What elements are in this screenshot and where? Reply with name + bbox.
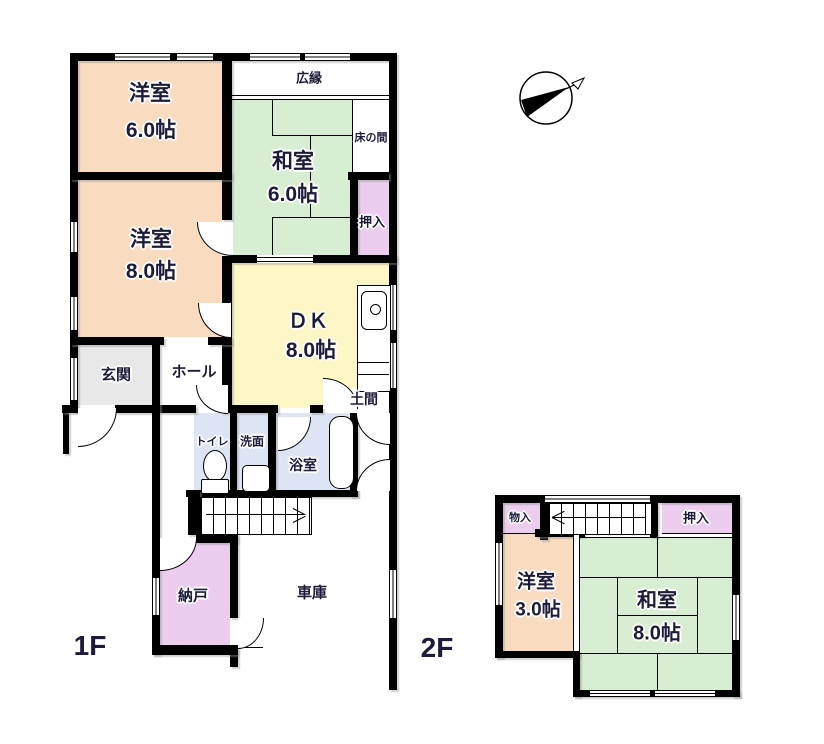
wall (70, 337, 164, 345)
room-name-label: 広縁 (296, 68, 322, 87)
wall (208, 337, 232, 345)
room-name-label: 押入 (359, 212, 385, 231)
room-name-label: 浴室 (289, 455, 317, 475)
floor-label-1f: 1F (74, 630, 107, 662)
toilet-icon (203, 450, 227, 482)
sliding-door-line (257, 257, 313, 258)
partition-line (662, 533, 732, 534)
window-marker (115, 53, 170, 61)
window-marker (152, 578, 160, 615)
room-name-label: 洋室 (517, 567, 555, 594)
room-size-label: 6.0帖 (268, 178, 318, 208)
bathtub-icon (329, 416, 354, 489)
stairs-arrow-line (552, 517, 646, 518)
room-name-label: 物入 (509, 509, 531, 525)
wall (62, 405, 78, 413)
tatami-line (272, 217, 273, 255)
room-name-label: 洗面 (240, 433, 264, 450)
sink-icon (242, 465, 270, 492)
sliding-door-line (257, 261, 313, 262)
room-size-label: 3.0帖 (515, 595, 560, 622)
wall (188, 490, 200, 535)
partition-line (503, 533, 540, 534)
wall (230, 413, 237, 490)
wall (222, 61, 232, 220)
door-arc (356, 459, 390, 491)
window-marker (590, 690, 650, 697)
room-name-label: 玄関 (101, 364, 131, 385)
tatami-line (272, 135, 352, 136)
door-arc (238, 618, 264, 649)
window-marker (70, 358, 78, 400)
door-arc (356, 413, 390, 445)
tatami-line (657, 653, 658, 690)
room-name-label: 納戸 (178, 585, 208, 606)
toilet-tank-icon (201, 479, 229, 494)
wall (228, 405, 278, 413)
tatami-line (580, 653, 732, 654)
window-marker (655, 690, 715, 697)
wall (63, 408, 69, 454)
wall (160, 405, 196, 413)
window-marker (495, 543, 503, 605)
stairs-arrow-line (206, 514, 304, 515)
room-japanese-8 (580, 537, 732, 690)
partition-line (580, 537, 732, 538)
room-name-label: 車庫 (297, 582, 327, 603)
wall (70, 172, 232, 180)
room-name-label: ホール (171, 361, 216, 382)
wall (348, 172, 389, 180)
tatami-line (657, 537, 658, 577)
stairs-1f (200, 497, 312, 535)
tatami-line (580, 577, 732, 578)
window-marker (305, 53, 350, 61)
partition-line (352, 100, 353, 172)
room-name-label: 和室 (637, 584, 677, 613)
wall (152, 645, 238, 655)
wall (230, 533, 238, 618)
window-marker (250, 53, 300, 61)
floor-label-2f: 2F (421, 632, 454, 664)
sliding-door-line (579, 533, 580, 651)
sliding-door-line (573, 533, 574, 651)
window-marker (389, 570, 397, 618)
wall (310, 405, 323, 413)
window-marker (545, 495, 650, 503)
window-marker (70, 297, 78, 330)
room-name-label: 洋室 (129, 77, 171, 107)
faucet-icon (370, 304, 381, 315)
door-arc (78, 408, 117, 447)
window-marker (177, 53, 213, 61)
wall (495, 651, 580, 658)
tatami-line (272, 217, 352, 218)
room-name-label: 押入 (683, 508, 709, 527)
tatami-line (272, 100, 273, 135)
stairs-2f (548, 503, 652, 535)
floorplan-canvas: 洋室 6.0帖 和室 6.0帖 広縁 床の間 押入 洋室 8.0帖 ＤＫ 8.0… (0, 0, 824, 744)
tatami-line (697, 577, 698, 653)
room-name-label: 和室 (272, 145, 314, 175)
window-marker (732, 595, 740, 640)
door-arc (196, 385, 228, 414)
window-marker (70, 222, 78, 252)
compass-north-icon (500, 55, 595, 145)
room-size-label: 6.0帖 (126, 114, 176, 144)
room-name-label: 土間 (350, 389, 378, 409)
counter-line (357, 362, 389, 363)
room-size-label: 8.0帖 (126, 255, 176, 285)
room-name-label: 床の間 (355, 129, 388, 145)
room-name-label: ＤＫ (288, 305, 328, 334)
room-size-label: 8.0帖 (286, 334, 336, 364)
partition-line (232, 99, 389, 100)
room-name-label: 洋室 (130, 223, 172, 253)
partition-line (232, 95, 389, 96)
room-name-label: トイレ (196, 433, 229, 449)
counter-line (357, 374, 389, 375)
room-size-label: 8.0帖 (633, 617, 681, 646)
